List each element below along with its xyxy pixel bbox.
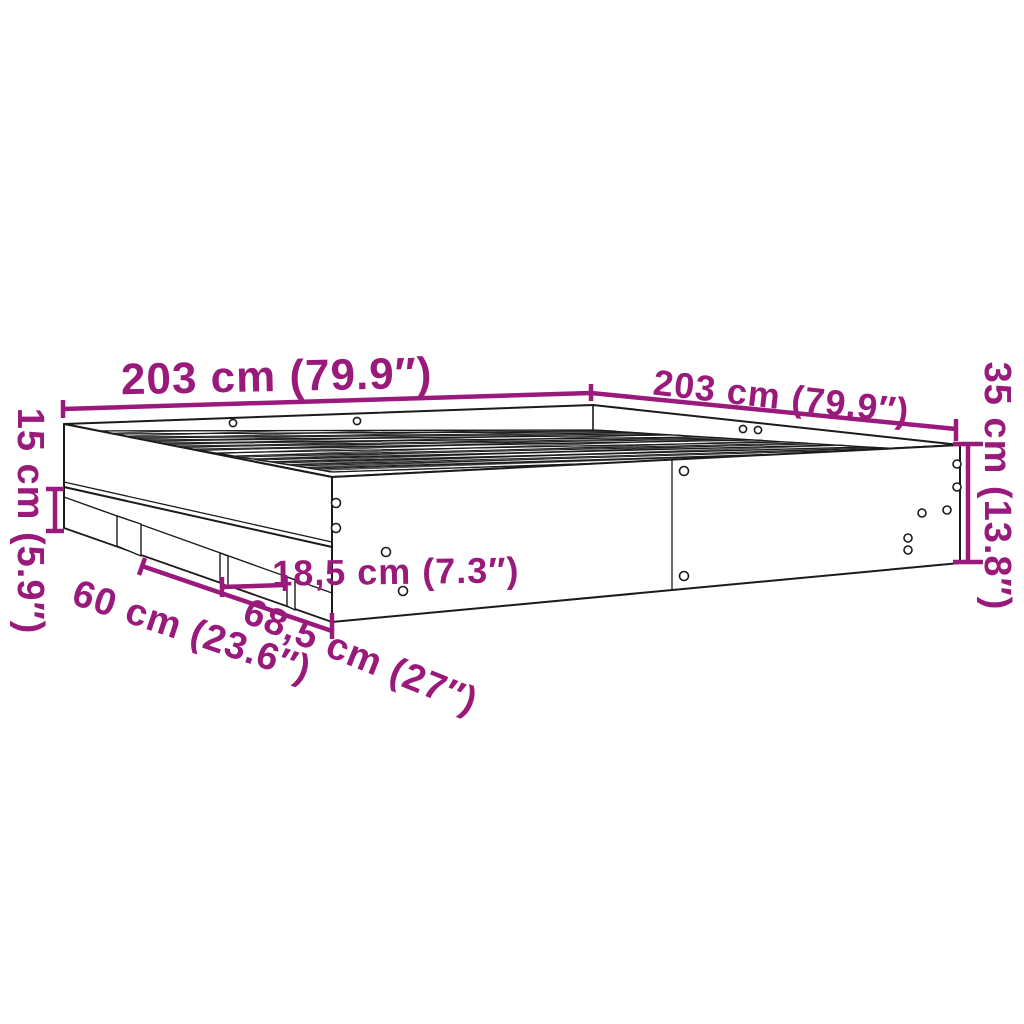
dimension-label-compartment-185: 18,5 cm (7.3″) xyxy=(272,549,520,593)
bed-frame-dimension-drawing: 203 cm (79.9″) 203 cm (79.9″) 35 cm (13.… xyxy=(0,0,1024,1024)
right-side-face xyxy=(332,445,960,622)
dimension-label-plinth-height-left: 15 cm (5.9″) xyxy=(9,408,51,635)
dimension-label-height-right: 35 cm (13.8″) xyxy=(976,362,1018,611)
dimension-label-length-top-left: 203 cm (79.9″) xyxy=(120,349,432,405)
product-dimension-diagram: 203 cm (79.9″) 203 cm (79.9″) 35 cm (13.… xyxy=(0,0,1024,1024)
plinth-divider xyxy=(117,516,141,556)
